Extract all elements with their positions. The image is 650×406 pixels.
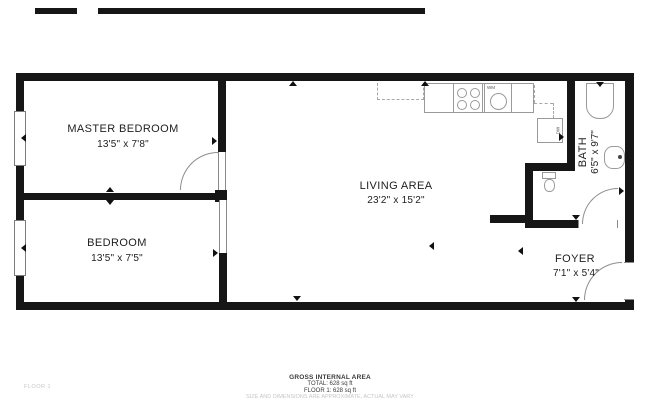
exterior-wall-right — [625, 73, 634, 262]
floor-number-label: FLOOR 1 — [24, 384, 51, 390]
room-dims-master-bedroom: 13'5" x 7'8" — [33, 139, 213, 150]
stove — [453, 83, 483, 113]
marker-icon — [572, 297, 580, 302]
toilet-bowl — [544, 179, 555, 192]
room-label-foyer: FOYER — [485, 253, 650, 265]
room-dims-bedroom: 13'5" x 7'5" — [27, 253, 207, 264]
exterior-wall-right — [625, 300, 634, 310]
room-label-living-area: LIVING AREA — [306, 180, 486, 192]
room-label-bath: BATH — [577, 124, 590, 180]
exterior-wall-bottom — [16, 302, 634, 310]
kitchen-dashed-line — [534, 103, 553, 104]
floor-plan: WM DW MASTER BEDROOM 13'5" x 7'8" BEDROO… — [0, 0, 650, 406]
room-dims-foyer: 7'1" x 5'4" — [486, 268, 650, 279]
marker-icon — [619, 187, 624, 195]
bath-door-arc — [582, 188, 618, 224]
burner-icon — [457, 88, 467, 98]
master-door-arc — [180, 152, 218, 190]
exterior-wall-top — [16, 73, 634, 81]
burner-icon — [470, 88, 480, 98]
marker-icon — [106, 200, 114, 205]
marker-icon — [106, 187, 114, 192]
marker-icon — [572, 215, 580, 220]
wall-master-right — [218, 73, 226, 152]
marker-icon — [213, 249, 218, 257]
marker-icon — [289, 81, 297, 86]
washing-machine-label: WM — [487, 85, 495, 90]
wall-bath-left — [567, 81, 575, 170]
stray-wall-segment — [35, 8, 77, 14]
wall-bedroom-right — [219, 253, 227, 302]
bathtub — [586, 83, 614, 119]
marker-icon — [429, 242, 434, 250]
kitchen-dashed-line — [534, 85, 535, 103]
wall-bedroom-divider — [24, 193, 227, 200]
footer-gross-area-title: GROSS INTERNAL AREA — [180, 374, 480, 381]
marker-icon — [21, 244, 26, 252]
washing-machine: WM — [484, 83, 512, 113]
sink-tap-icon — [618, 155, 622, 159]
room-dims-living-area: 23'2" x 15'2" — [306, 195, 486, 206]
room-label-bedroom: BEDROOM — [27, 237, 207, 249]
footer-disclaimer: SIZE AND DIMENSIONS ARE APPROXIMATE, ACT… — [180, 394, 480, 401]
wall-living-foyer-stub — [490, 215, 533, 223]
bedroom-opening — [219, 200, 227, 253]
kitchen-upper-cabinet-dashed — [377, 83, 424, 100]
burner-icon — [457, 100, 467, 110]
burner-icon — [470, 100, 480, 110]
room-label-master-bedroom: MASTER BEDROOM — [33, 123, 213, 135]
kitchen-dashed-line — [553, 103, 554, 118]
footer: GROSS INTERNAL AREA TOTAL: 628 sq ft FLO… — [180, 374, 480, 401]
marker-icon — [559, 133, 564, 141]
wall-bath-bottom — [533, 220, 578, 228]
marker-icon — [421, 81, 429, 86]
master-door-opening — [218, 152, 226, 190]
washing-machine-drum-icon — [490, 93, 507, 110]
marker-icon — [21, 134, 26, 142]
stray-wall-segment — [98, 8, 425, 14]
toilet-tank — [542, 172, 556, 179]
marker-icon — [293, 296, 301, 301]
bathtub-tap-icon — [596, 82, 604, 87]
room-label-bath-group: BATH 6'5" x 9'7" — [577, 124, 603, 180]
room-dims-bath: 6'5" x 9'7" — [590, 124, 602, 180]
